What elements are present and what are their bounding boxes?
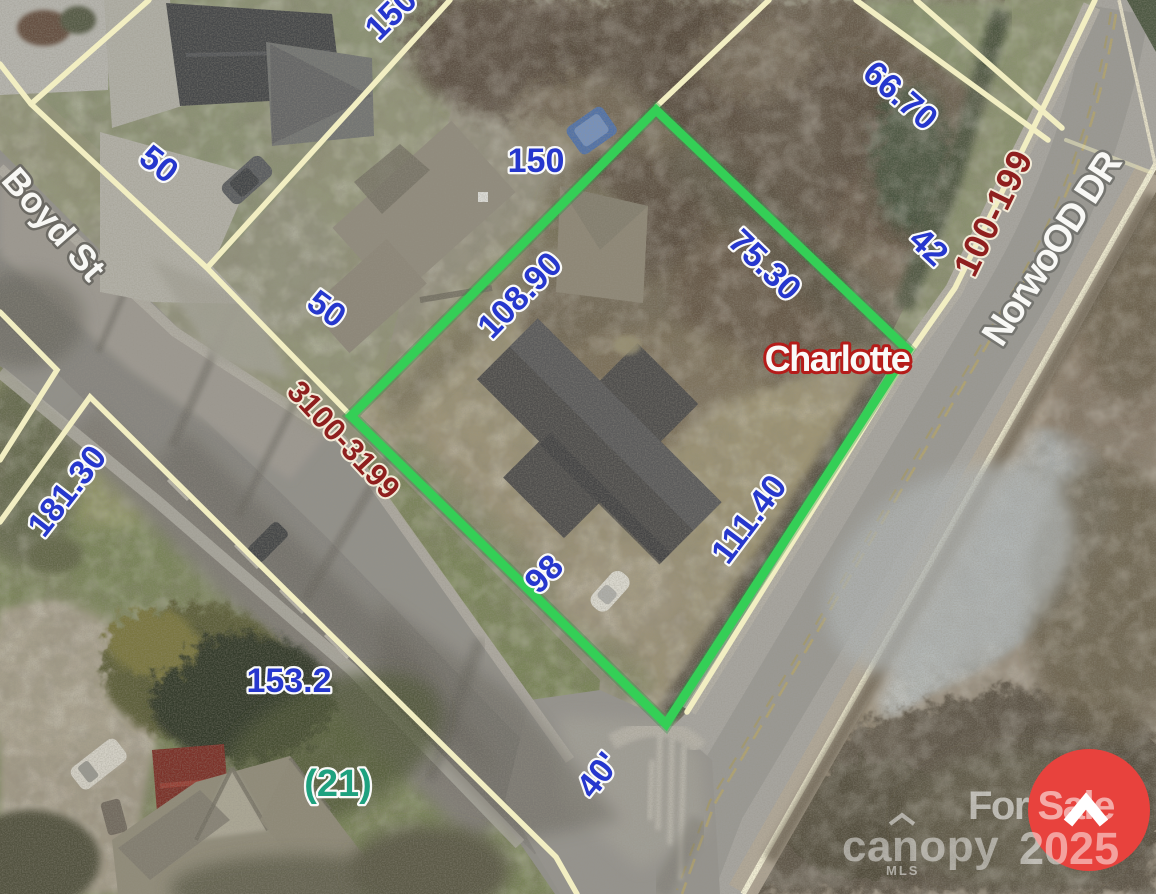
svg-text:MLS: MLS <box>886 863 919 878</box>
svg-text:canopy: canopy <box>842 822 999 871</box>
svg-text:2025: 2025 <box>1019 823 1119 874</box>
